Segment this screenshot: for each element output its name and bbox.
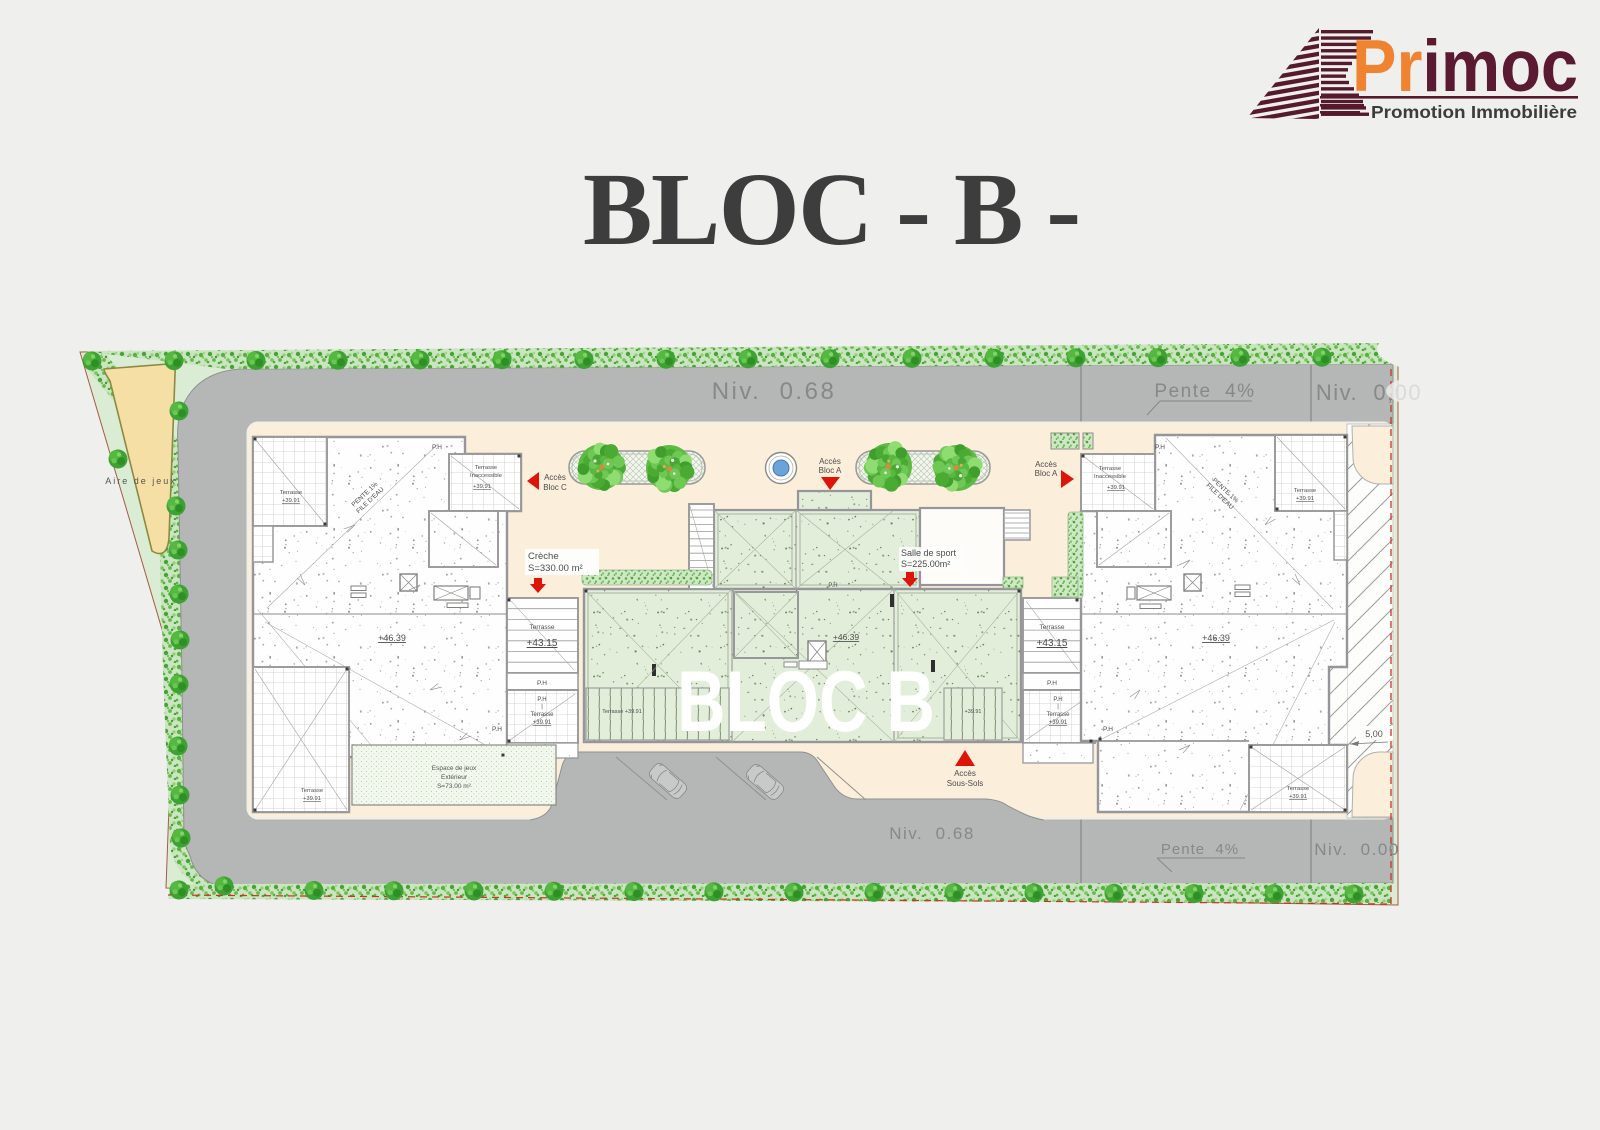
svg-text:Pente 4%: Pente 4% (1161, 841, 1239, 858)
svg-text:Bloc A: Bloc A (819, 466, 842, 475)
svg-text:P.H: P.H (537, 697, 546, 703)
svg-text:P.H: P.H (1103, 726, 1113, 733)
svg-text:+43.15: +43.15 (527, 638, 558, 649)
svg-text:Terrasse: Terrasse (1040, 624, 1065, 631)
svg-text:Salle de sport: Salle de sport (901, 548, 957, 558)
svg-text:P.H: P.H (1047, 680, 1057, 687)
svg-text:+39.91: +39.91 (473, 484, 491, 490)
svg-text:+39.91: +39.91 (1107, 485, 1125, 491)
svg-text:+39.91: +39.91 (303, 796, 321, 802)
svg-text:P.H: P.H (432, 444, 442, 451)
svg-text:Accès: Accès (544, 473, 566, 482)
svg-text:Terrasse +39.91: Terrasse +39.91 (602, 709, 642, 715)
svg-text:P.H: P.H (492, 726, 502, 733)
svg-text:Niv. 0.00: Niv. 0.00 (1314, 840, 1400, 859)
svg-text:BLOC B: BLOC B (677, 654, 935, 750)
svg-text:Accès: Accès (954, 769, 976, 778)
svg-text:Niv. 0.68: Niv. 0.68 (889, 824, 975, 843)
svg-text:Espace de jeux: Espace de jeux (432, 765, 477, 772)
svg-text:Terrasse: Terrasse (280, 490, 302, 496)
svg-text:Terrasse: Terrasse (1099, 466, 1121, 472)
svg-text:Aire de jeux: Aire de jeux (105, 476, 177, 486)
svg-text:P.H: P.H (1155, 444, 1165, 451)
svg-text:Accès: Accès (1035, 460, 1057, 469)
svg-text:Terrasse: Terrasse (1287, 786, 1309, 792)
svg-text:+39.91: +39.91 (1296, 496, 1314, 502)
svg-text:+39.91: +39.91 (965, 709, 982, 715)
svg-text:BLOC - B -: BLOC - B - (583, 152, 1081, 267)
svg-text:Crèche: Crèche (528, 551, 559, 562)
svg-text:Sous-Sols: Sous-Sols (947, 779, 983, 788)
svg-text:Inaccessible: Inaccessible (470, 473, 502, 479)
svg-text:Terrasse: Terrasse (530, 712, 554, 718)
svg-text:S=225.00m²: S=225.00m² (901, 559, 950, 569)
svg-text:+43.15: +43.15 (1037, 638, 1068, 649)
svg-text:Terrasse: Terrasse (1046, 712, 1070, 718)
svg-text:Primoc: Primoc (1352, 26, 1578, 107)
svg-text:Bloc A: Bloc A (1035, 469, 1058, 478)
svg-text:Bloc C: Bloc C (543, 483, 567, 492)
svg-text:Extérieur: Extérieur (441, 774, 468, 781)
svg-text:P.H: P.H (1053, 697, 1062, 703)
svg-text:Inaccessible: Inaccessible (1094, 474, 1126, 480)
svg-text:Terrasse: Terrasse (475, 465, 497, 471)
svg-text:Accès: Accès (819, 457, 841, 466)
svg-text:S=73.00 m²: S=73.00 m² (437, 783, 472, 790)
svg-text:Niv. 0.68: Niv. 0.68 (712, 378, 837, 405)
svg-text:Promotion Immobilière: Promotion Immobilière (1371, 102, 1577, 122)
svg-text:Terrasse: Terrasse (1294, 488, 1316, 494)
svg-text:P.H: P.H (828, 583, 837, 589)
svg-text:P.H: P.H (537, 680, 547, 687)
svg-text:+39.91: +39.91 (1049, 720, 1068, 726)
svg-text:S=330.00 m²: S=330.00 m² (528, 563, 583, 574)
svg-text:+46.39: +46.39 (378, 633, 406, 643)
svg-text:+39.91: +39.91 (1289, 794, 1307, 800)
svg-text:5,00: 5,00 (1365, 729, 1383, 739)
svg-text:Terrasse: Terrasse (530, 624, 555, 631)
svg-text:+46.39: +46.39 (1202, 633, 1230, 643)
svg-text:Terrasse: Terrasse (301, 788, 323, 794)
svg-text:Pente 4%: Pente 4% (1154, 381, 1255, 402)
svg-text:+39.91: +39.91 (533, 720, 552, 726)
svg-text:+46.39: +46.39 (833, 632, 860, 642)
svg-text:+39.91: +39.91 (282, 498, 300, 504)
